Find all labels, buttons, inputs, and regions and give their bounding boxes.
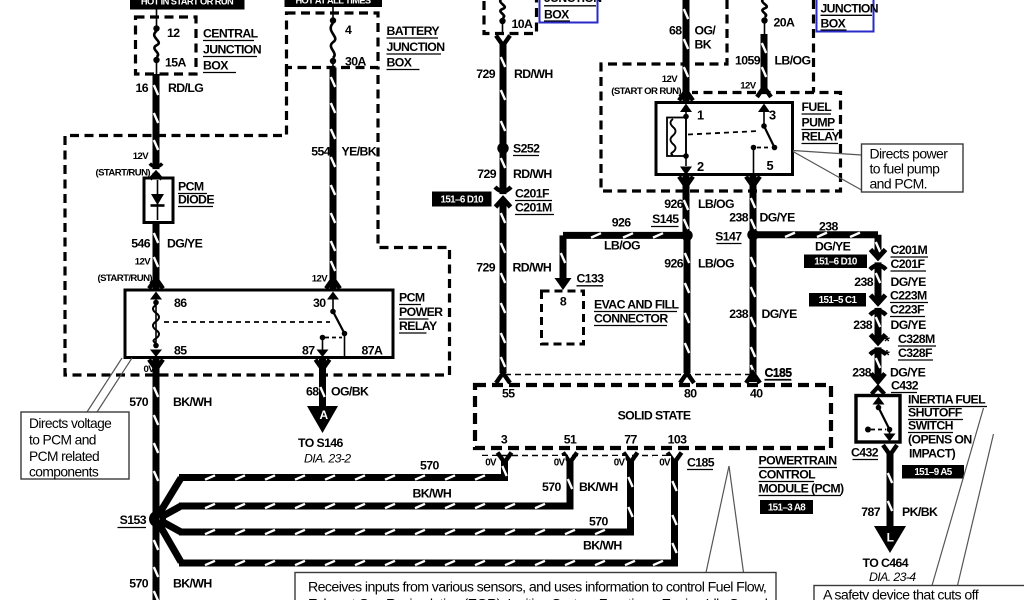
svg-text:JUNCTION: JUNCTION	[821, 2, 879, 16]
svg-text:12V: 12V	[312, 274, 328, 285]
svg-text:DIODE: DIODE	[178, 193, 214, 207]
svg-text:12V: 12V	[662, 74, 678, 85]
svg-text:C328F: C328F	[898, 346, 933, 360]
svg-text:0V: 0V	[554, 458, 566, 469]
svg-text:12V: 12V	[135, 257, 151, 268]
svg-text:DIA. 23-2: DIA. 23-2	[304, 452, 351, 466]
svg-text:C432: C432	[851, 446, 879, 460]
svg-text:IMPACT): IMPACT)	[909, 447, 956, 461]
svg-text:S252: S252	[513, 142, 540, 156]
svg-text:BK/WH: BK/WH	[583, 539, 622, 553]
svg-text:C201M: C201M	[891, 243, 928, 257]
svg-text:DG/YE: DG/YE	[760, 211, 796, 225]
svg-text:C201F: C201F	[515, 187, 550, 201]
svg-text:(START OR RUN): (START OR RUN)	[611, 86, 681, 97]
svg-text:3: 3	[501, 433, 508, 447]
svg-text:C201F: C201F	[891, 257, 926, 271]
svg-text:*: *	[884, 347, 890, 364]
svg-text:BATTERY: BATTERY	[387, 24, 440, 38]
svg-text:238: 238	[852, 366, 871, 380]
svg-text:C328M: C328M	[898, 332, 935, 346]
svg-text:238: 238	[854, 275, 873, 289]
svg-text:DG/YE: DG/YE	[890, 366, 926, 380]
svg-text:C201M: C201M	[515, 201, 552, 215]
svg-text:3: 3	[769, 108, 776, 123]
svg-text:C432: C432	[891, 379, 919, 393]
svg-text:POWER: POWER	[399, 305, 443, 319]
svg-text:SWITCH: SWITCH	[908, 419, 954, 433]
svg-text:Directs voltage: Directs voltage	[29, 416, 112, 431]
svg-text:BOX: BOX	[203, 59, 229, 73]
svg-text:15A: 15A	[165, 56, 186, 70]
svg-text:30A: 30A	[345, 55, 366, 69]
svg-text:RD/LG: RD/LG	[168, 81, 203, 95]
svg-text:YE/BK: YE/BK	[342, 145, 377, 159]
svg-text:2: 2	[697, 159, 704, 174]
svg-text:S153: S153	[120, 513, 147, 527]
svg-text:RELAY: RELAY	[802, 130, 840, 144]
svg-text:570: 570	[129, 577, 148, 591]
svg-text:DG/YE: DG/YE	[891, 318, 927, 332]
svg-text:729: 729	[476, 261, 495, 275]
svg-text:151–6 D10: 151–6 D10	[440, 194, 484, 205]
svg-text:12V: 12V	[133, 151, 149, 162]
svg-text:51: 51	[564, 433, 577, 447]
svg-text:RD/WH: RD/WH	[514, 67, 553, 81]
svg-text:16: 16	[136, 81, 149, 95]
svg-text:86: 86	[174, 296, 187, 310]
svg-text:POWERTRAIN: POWERTRAIN	[759, 454, 838, 468]
svg-text:PCM: PCM	[178, 180, 204, 194]
svg-text:926: 926	[664, 257, 683, 271]
svg-text:238: 238	[853, 318, 872, 332]
svg-text:JUNCTION: JUNCTION	[544, 0, 602, 5]
svg-text:1: 1	[697, 108, 704, 123]
svg-text:BOX: BOX	[387, 56, 413, 70]
svg-text:BOX: BOX	[544, 8, 570, 22]
svg-text:A: A	[319, 408, 328, 422]
svg-text:CONNECTOR: CONNECTOR	[594, 312, 668, 326]
svg-text:570: 570	[420, 459, 439, 473]
svg-text:(OPENS ON: (OPENS ON	[908, 433, 972, 447]
svg-text:Receives inputs from various s: Receives inputs from various sensors, an…	[308, 580, 766, 596]
svg-text:LB/OG: LB/OG	[698, 197, 734, 211]
svg-text:30: 30	[313, 296, 326, 310]
svg-text:238: 238	[729, 307, 748, 321]
svg-text:12V: 12V	[740, 81, 756, 92]
svg-text:L: L	[887, 531, 894, 545]
svg-text:1059: 1059	[735, 54, 761, 68]
svg-text:RD/WH: RD/WH	[513, 261, 552, 275]
svg-text:12: 12	[167, 26, 180, 40]
svg-text:0V: 0V	[614, 458, 626, 469]
svg-text:PUMP: PUMP	[802, 116, 836, 130]
svg-text:MODULE (PCM): MODULE (PCM)	[759, 482, 845, 496]
svg-text:DG/YE: DG/YE	[815, 240, 851, 254]
svg-text:BK/WH: BK/WH	[173, 395, 212, 409]
svg-text:S147: S147	[715, 230, 742, 244]
svg-text:BOX: BOX	[821, 17, 847, 31]
svg-text:DIA. 23-4: DIA. 23-4	[869, 570, 916, 584]
svg-text:SOLID STATE: SOLID STATE	[618, 409, 691, 423]
svg-text:0V: 0V	[659, 458, 671, 469]
svg-text:(START/RUN): (START/RUN)	[97, 273, 152, 284]
svg-text:to fuel pump: to fuel pump	[870, 161, 941, 177]
svg-text:A safety device that cuts off: A safety device that cuts off	[823, 588, 979, 600]
svg-text:CONTROL: CONTROL	[759, 468, 817, 482]
svg-text:C133: C133	[577, 272, 605, 286]
svg-text:87: 87	[302, 344, 315, 358]
svg-text:PK/BK: PK/BK	[902, 505, 938, 519]
svg-text:to PCM and: to PCM and	[29, 433, 96, 448]
svg-text:87A: 87A	[362, 344, 383, 358]
svg-text:570: 570	[129, 395, 148, 409]
svg-text:68: 68	[306, 385, 319, 399]
svg-text:C185: C185	[687, 456, 715, 470]
svg-text:BK: BK	[695, 38, 712, 52]
svg-text:DG/YE: DG/YE	[891, 275, 927, 289]
svg-text:238: 238	[729, 211, 748, 225]
svg-text:RD/WH: RD/WH	[513, 167, 552, 181]
svg-text:151–9 A5: 151–9 A5	[914, 467, 952, 478]
svg-text:INERTIA FUEL: INERTIA FUEL	[908, 393, 986, 407]
svg-text:103: 103	[668, 433, 687, 447]
svg-text:JUNCTION: JUNCTION	[387, 40, 446, 54]
svg-text:787: 787	[861, 505, 880, 519]
svg-text:554: 554	[311, 145, 330, 159]
svg-text:CENTRAL: CENTRAL	[203, 27, 259, 41]
svg-text:570: 570	[542, 480, 561, 494]
svg-text:OG/: OG/	[695, 24, 717, 38]
svg-text:Exhaust Gas Recirculation (EGR: Exhaust Gas Recirculation (EGR), Ignitio…	[308, 597, 767, 600]
svg-text:151–6 D10: 151–6 D10	[814, 257, 858, 268]
svg-text:LB/OG: LB/OG	[604, 239, 640, 253]
svg-text:SHUTOFF: SHUTOFF	[908, 406, 963, 420]
svg-text:HOT IN START OR RUN: HOT IN START OR RUN	[141, 0, 234, 7]
svg-text:238: 238	[819, 220, 838, 234]
svg-text:55: 55	[502, 387, 515, 401]
svg-text:BK/WH: BK/WH	[173, 577, 212, 591]
svg-text:10A: 10A	[512, 17, 533, 31]
svg-text:S145: S145	[652, 212, 679, 226]
svg-text:PCM: PCM	[399, 291, 425, 305]
svg-text:729: 729	[476, 67, 495, 81]
svg-text:C185: C185	[765, 366, 793, 380]
svg-text:OG/BK: OG/BK	[331, 385, 369, 399]
svg-text:DG/YE: DG/YE	[167, 237, 203, 251]
svg-text:5: 5	[767, 158, 774, 173]
svg-text:LB/OG: LB/OG	[698, 257, 734, 271]
svg-text:77: 77	[624, 433, 637, 447]
svg-text:20A: 20A	[774, 16, 795, 30]
svg-text:RELAY: RELAY	[399, 319, 437, 333]
svg-text:components: components	[29, 465, 99, 480]
svg-text:80: 80	[684, 387, 697, 401]
svg-text:DG/YE: DG/YE	[762, 307, 798, 321]
svg-text:BK/WH: BK/WH	[579, 480, 618, 494]
svg-text:HOT AT ALL TIMES: HOT AT ALL TIMES	[295, 0, 370, 5]
svg-text:EVAC AND FILL: EVAC AND FILL	[594, 298, 680, 312]
svg-text:8: 8	[560, 295, 567, 309]
svg-text:926: 926	[612, 216, 631, 230]
svg-text:151–5 C1: 151–5 C1	[819, 295, 858, 306]
svg-text:PCM related: PCM related	[29, 449, 99, 464]
svg-text:4: 4	[345, 23, 352, 37]
svg-text:926: 926	[664, 197, 683, 211]
svg-text:C223M: C223M	[890, 289, 927, 303]
svg-text:68: 68	[669, 24, 682, 38]
svg-text:TO C464: TO C464	[863, 556, 909, 570]
svg-text:729: 729	[477, 167, 496, 181]
svg-text:Directs power: Directs power	[870, 146, 949, 162]
svg-text:0V: 0V	[485, 458, 497, 469]
svg-text:40: 40	[750, 387, 763, 401]
svg-text:C223F: C223F	[890, 303, 925, 317]
svg-text:570: 570	[589, 515, 608, 529]
svg-text:JUNCTION: JUNCTION	[203, 43, 262, 57]
svg-text:151–3 A8: 151–3 A8	[768, 502, 806, 513]
svg-text:LB/OG: LB/OG	[775, 54, 811, 68]
svg-text:TO S146: TO S146	[298, 436, 344, 450]
svg-text:85: 85	[174, 344, 187, 358]
svg-text:(START/RUN): (START/RUN)	[95, 168, 150, 179]
svg-text:and PCM.: and PCM.	[870, 176, 927, 192]
svg-text:BK/WH: BK/WH	[413, 487, 452, 501]
svg-text:546: 546	[131, 237, 150, 251]
svg-text:FUEL: FUEL	[802, 100, 833, 114]
